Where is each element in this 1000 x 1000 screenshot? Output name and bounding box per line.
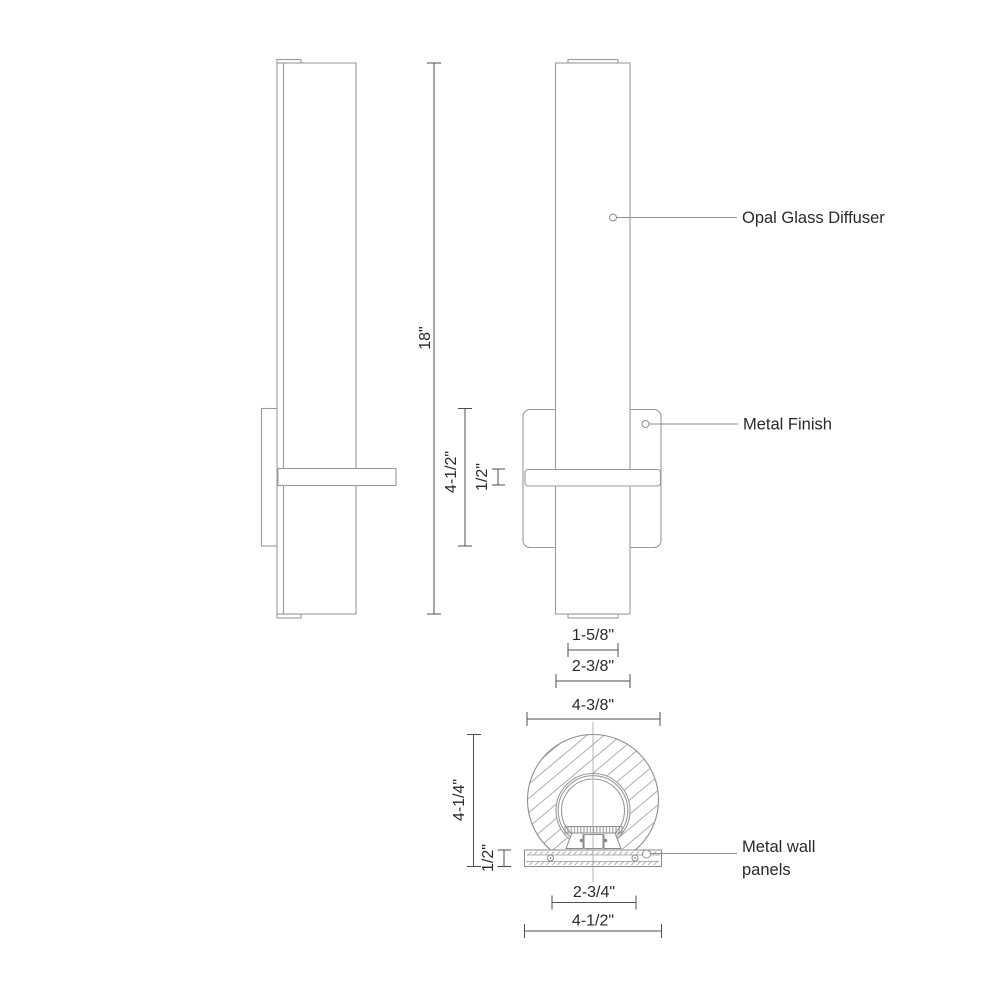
plan-view xyxy=(525,722,662,882)
dim-overall-depth: 4-1/4" xyxy=(451,735,481,867)
dim-backplate-height-line xyxy=(458,409,472,547)
plan-plate-screw-right-dot xyxy=(634,857,636,859)
side-view xyxy=(262,60,397,619)
side-glass-tube xyxy=(284,63,357,614)
plan-led-assembly xyxy=(565,827,622,849)
front-glass-tube xyxy=(556,63,631,614)
plan-plate-screw-left-dot xyxy=(550,857,552,859)
plan-led-screw-right xyxy=(604,839,608,843)
dimension-drawing-page: 18" 4-1/2" 1/2" 1-5/8" 2-3/8" 4-3/8" xyxy=(0,0,1000,1000)
front-mounting-bar xyxy=(525,470,661,487)
dim-inner-mount-width: 2-3/4" xyxy=(552,884,636,910)
dim-body-diameter: 4-3/8" xyxy=(527,697,660,726)
dim-plate-thickness-line xyxy=(498,850,512,867)
dim-plate-thickness-text: 1/2" xyxy=(480,844,497,872)
plan-led-heatsink-comb xyxy=(565,827,622,834)
panels-label-line2: panels xyxy=(742,861,791,879)
leader-finish: Metal Finish xyxy=(642,416,832,434)
front-bottom-cap xyxy=(568,614,618,618)
side-bottom-cap xyxy=(277,614,301,618)
diffuser-label: Opal Glass Diffuser xyxy=(742,209,885,227)
dim-inner-mount-width-text: 2-3/4" xyxy=(573,884,615,901)
sconce-drawing-svg: 18" 4-1/2" 1/2" 1-5/8" 2-3/8" 4-3/8" xyxy=(0,0,1000,1000)
dim-tube-width: 2-3/8" xyxy=(556,658,630,688)
dim-tube-width-line xyxy=(556,674,630,688)
dim-arm-thickness-line xyxy=(492,469,505,485)
finish-label: Metal Finish xyxy=(743,416,832,434)
dim-backplate-height-text: 4-1/2" xyxy=(443,451,460,493)
dim-plate-width: 4-1/2" xyxy=(525,913,662,939)
dim-body-diameter-line xyxy=(527,712,660,726)
dim-tube-width-text: 2-3/8" xyxy=(572,658,614,675)
side-back-strip xyxy=(277,63,284,614)
side-mounting-arm xyxy=(278,469,396,486)
dim-arm-thickness-text: 1/2" xyxy=(474,463,491,491)
dim-backplate-height: 4-1/2" xyxy=(443,409,472,547)
dim-endcap-width: 1-5/8" xyxy=(568,627,618,657)
side-wall-plate xyxy=(262,409,279,547)
dim-fixture-height: 18" xyxy=(417,63,441,614)
leader-finish-dot xyxy=(642,421,649,428)
dim-endcap-width-line xyxy=(568,643,618,657)
leader-panels: Metal wall panels xyxy=(643,838,816,879)
plan-led-driver-box xyxy=(584,835,603,849)
dim-plate-width-text: 4-1/2" xyxy=(572,913,614,930)
dim-overall-depth-text: 4-1/4" xyxy=(451,779,468,821)
dim-fixture-height-text: 18" xyxy=(417,326,434,349)
front-view xyxy=(523,60,661,619)
leader-diffuser-dot xyxy=(610,214,617,221)
dim-arm-thickness: 1/2" xyxy=(474,463,505,491)
dim-plate-thickness: 1/2" xyxy=(480,844,511,872)
dim-overall-depth-line xyxy=(467,735,481,867)
dim-body-diameter-text: 4-3/8" xyxy=(572,697,614,714)
leader-diffuser: Opal Glass Diffuser xyxy=(610,209,886,227)
plan-led-screw-left xyxy=(580,839,584,843)
leader-panels-dot xyxy=(643,850,651,858)
dim-endcap-width-text: 1-5/8" xyxy=(572,627,614,644)
panels-label-line1: Metal wall xyxy=(742,838,815,856)
